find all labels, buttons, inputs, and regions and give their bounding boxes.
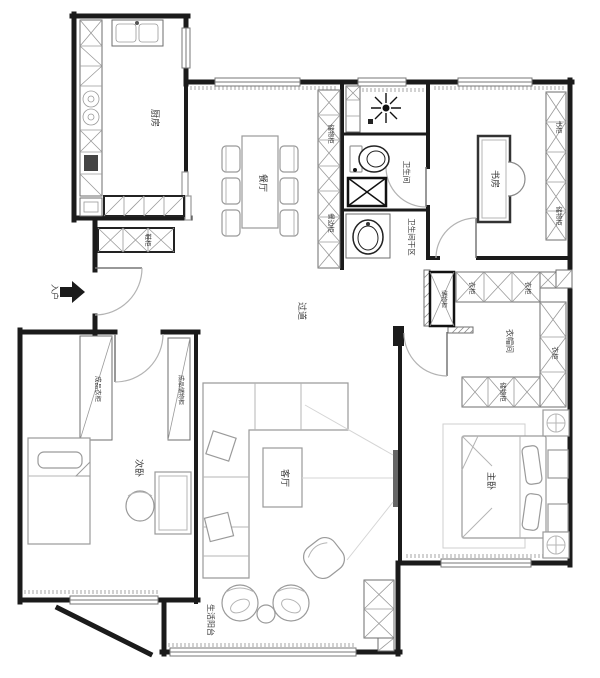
- sink-icon: [112, 20, 163, 46]
- lounge-chair-icon: [299, 533, 350, 584]
- wardrobe-right-column: 衣柜: [540, 302, 566, 407]
- ac-unit-top: [543, 410, 569, 436]
- wardrobe-a-label: 衣柜: [468, 282, 477, 296]
- wardrobe-b-label: 衣柜: [524, 282, 533, 296]
- secondary-label: 次卧: [133, 459, 145, 477]
- master-label: 主卧: [485, 472, 497, 490]
- walls: [20, 14, 572, 654]
- bookcase-label: 书柜: [555, 121, 564, 135]
- window-kitchen: [182, 28, 190, 68]
- study-label: 书房: [489, 170, 501, 188]
- kitchen-room: 厨房: [80, 20, 184, 216]
- entry-arrow-icon: [60, 281, 85, 303]
- ac-unit-bottom: [543, 532, 569, 558]
- shoe-cabinet-label: 鞋柜: [144, 234, 153, 248]
- washbasin-icon: [346, 214, 390, 258]
- balcony-table-icon: [257, 605, 275, 623]
- bathroom: 卫生间 卫生间干区: [346, 86, 417, 258]
- kitchen-bottom-cabinets: [80, 196, 184, 216]
- closet-storage-b-label: 储物柜: [499, 382, 508, 402]
- sideboard-label: 餐边柜: [327, 213, 336, 233]
- living-room: 客厅: [203, 383, 398, 583]
- oven-icon: [84, 155, 98, 171]
- bath-wet-label: 卫生间: [402, 161, 412, 184]
- windows: [70, 28, 532, 656]
- bath-dry-label: 卫生间干区: [407, 218, 417, 256]
- ready-storage-cabinet: 成品储物柜: [168, 338, 190, 440]
- corridor-label: 过道: [296, 302, 308, 320]
- living-label: 客厅: [279, 469, 291, 487]
- ready-wardrobe-cabinet: 成品衣柜: [80, 336, 112, 440]
- secondary-bedroom: 成品衣柜 成品储物柜 次卧: [28, 336, 191, 544]
- closet-room-label: 衣帽间: [505, 329, 515, 353]
- toilet-icon: [350, 146, 389, 172]
- ready-wardrobe-label: 成品衣柜: [94, 376, 103, 403]
- kitchen-cabinet-column: [80, 20, 102, 196]
- egg-chair-left-icon: [222, 585, 258, 621]
- study-storage-label: 储物柜: [555, 206, 564, 226]
- desk-icon: [478, 136, 525, 222]
- closet-room: 储物柜 衣柜 衣柜 衣柜 储物柜 衣帽间: [424, 270, 572, 407]
- master-bed-icon: [462, 436, 546, 538]
- window-bath: [358, 78, 406, 86]
- closet-bottom-row: 储物柜: [462, 377, 540, 407]
- dining-room: 餐厅 储物柜 餐边柜: [222, 90, 340, 268]
- entry-label: 入户: [50, 284, 60, 300]
- window-master: [441, 559, 531, 567]
- floor-plan: 厨房 入户 鞋柜 餐厅 储物柜 餐边柜: [0, 0, 600, 678]
- closet-storage-cabinet: 储物柜: [430, 272, 454, 326]
- dining-label: 餐厅: [257, 174, 269, 192]
- window-study: [458, 78, 532, 86]
- closet-door: [404, 332, 447, 376]
- desk-chair-icon: [508, 162, 525, 196]
- secondary-bed-icon: [28, 438, 90, 544]
- wardrobe-c-label: 衣柜: [551, 347, 560, 361]
- window-balcony: [170, 648, 356, 656]
- balcony-cabinet: [364, 580, 394, 651]
- closet-storage-a-label: 储物柜: [440, 290, 448, 308]
- bookcase-strip: 书柜 储物柜: [546, 92, 566, 240]
- balcony-label: 生活阳台: [206, 604, 216, 636]
- window-secondary: [70, 596, 158, 604]
- balcony: 生活阳台: [206, 580, 394, 651]
- egg-chair-right-icon: [273, 585, 309, 621]
- floor-plan-canvas: 厨房 入户 鞋柜 餐厅 储物柜 餐边柜: [0, 0, 600, 678]
- shower-icon: [368, 93, 401, 124]
- secondary-bedroom-door: [115, 334, 163, 382]
- entry-area: 入户 鞋柜: [50, 228, 174, 303]
- desk-chair-icon: [126, 491, 154, 521]
- master-bedroom: 主卧: [443, 410, 569, 558]
- entry-door: [95, 268, 142, 315]
- secondary-desk-icon: [126, 472, 191, 534]
- hall-cabinet-strip: 储物柜 餐边柜: [318, 90, 340, 268]
- wall-stub: [393, 326, 404, 346]
- hall-storage-label: 储物柜: [327, 124, 336, 144]
- study-room: 书房 书柜 储物柜: [478, 92, 566, 240]
- study-door: [436, 218, 476, 258]
- window-dining: [215, 78, 300, 86]
- shaft-box: [348, 178, 386, 206]
- shower-area: [346, 86, 401, 132]
- wardrobe-top-row: 衣柜 衣柜: [456, 270, 572, 302]
- pillow-icon: [204, 512, 233, 541]
- shoe-cabinet: 鞋柜: [98, 228, 174, 252]
- kitchen-label: 厨房: [149, 109, 161, 127]
- nightstands: [548, 450, 568, 532]
- ready-storage-label: 成品储物柜: [177, 375, 185, 405]
